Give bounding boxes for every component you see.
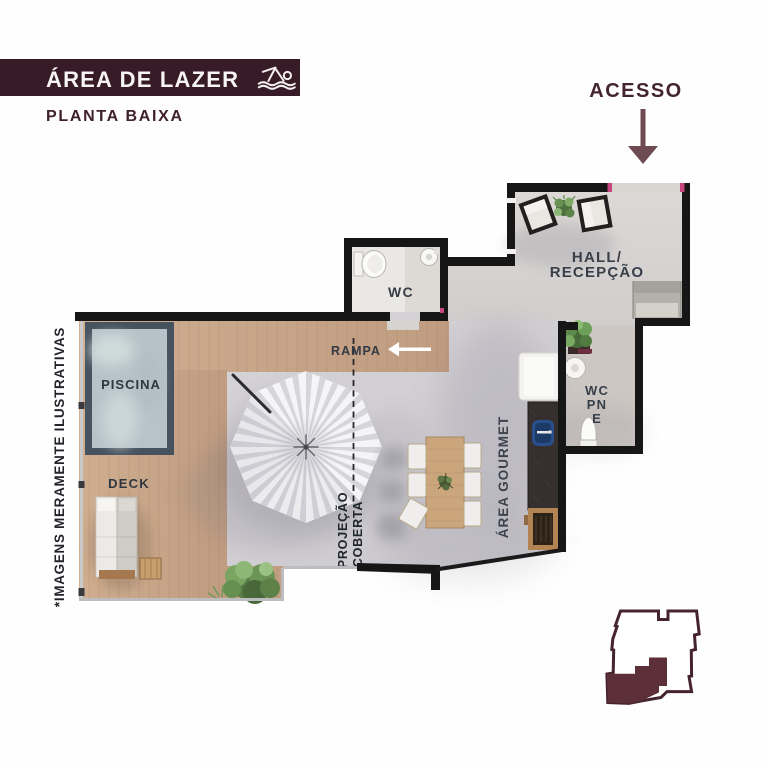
svg-text:PISCINA: PISCINA — [101, 377, 161, 392]
svg-text:ACESSO: ACESSO — [589, 80, 682, 102]
svg-text:PLANTA BAIXA: PLANTA BAIXA — [46, 108, 184, 125]
svg-text:*IMAGENS MERAMENTE ILUSTRATIVA: *IMAGENS MERAMENTE ILUSTRATIVAS — [52, 327, 67, 607]
svg-text:PN: PN — [587, 397, 607, 412]
svg-text:DECK: DECK — [108, 476, 150, 491]
svg-text:E: E — [592, 411, 602, 426]
svg-text:PROJEÇÃO: PROJEÇÃO — [335, 492, 350, 569]
svg-text:RECEPÇÃO: RECEPÇÃO — [550, 263, 645, 281]
svg-text:ÁREA DE LAZER: ÁREA DE LAZER — [46, 67, 239, 92]
svg-text:WC: WC — [388, 284, 414, 300]
svg-text:RAMPA: RAMPA — [331, 344, 381, 358]
svg-text:WC: WC — [585, 383, 609, 398]
svg-text:ÁREA GOURMET: ÁREA GOURMET — [496, 416, 511, 539]
svg-text:COBERTA: COBERTA — [351, 501, 365, 567]
